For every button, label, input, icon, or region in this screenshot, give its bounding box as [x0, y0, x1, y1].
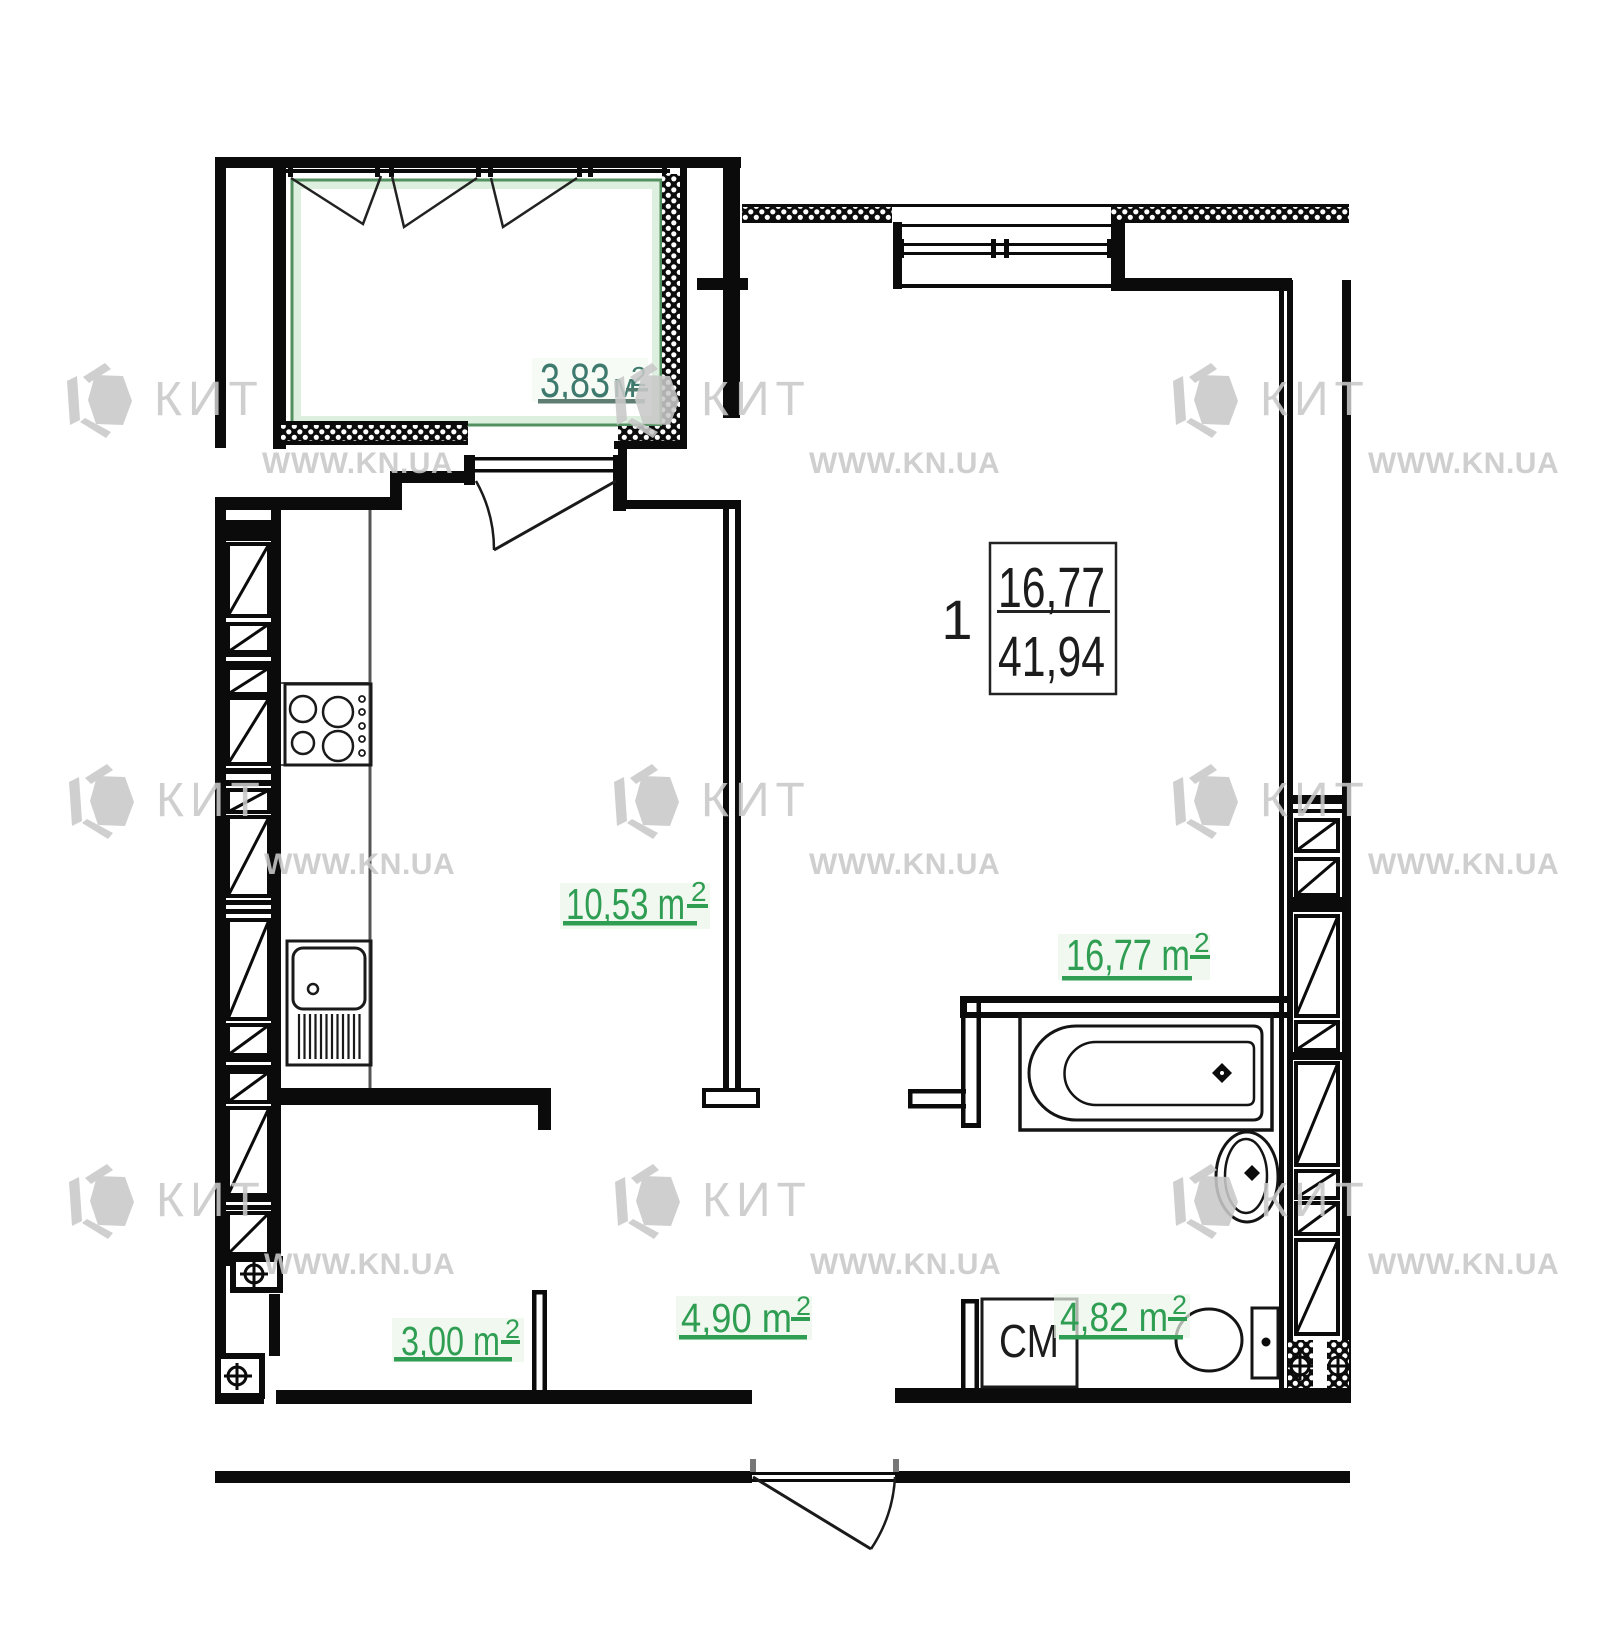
svg-text:41,94: 41,94 [998, 625, 1105, 689]
svg-text:2: 2 [1194, 927, 1210, 958]
svg-text:2: 2 [691, 876, 707, 907]
svg-text:2: 2 [505, 1314, 520, 1344]
svg-text:16,77: 16,77 [998, 556, 1105, 620]
svg-text:2: 2 [796, 1291, 811, 1321]
svg-text:4,90 m: 4,90 m [681, 1295, 792, 1341]
svg-text:16,77 m: 16,77 m [1066, 931, 1190, 980]
svg-text:2: 2 [1172, 1290, 1187, 1320]
svg-text:СМ: СМ [999, 1315, 1059, 1367]
svg-text:4,82 m: 4,82 m [1060, 1294, 1168, 1340]
svg-text:1: 1 [941, 588, 972, 651]
